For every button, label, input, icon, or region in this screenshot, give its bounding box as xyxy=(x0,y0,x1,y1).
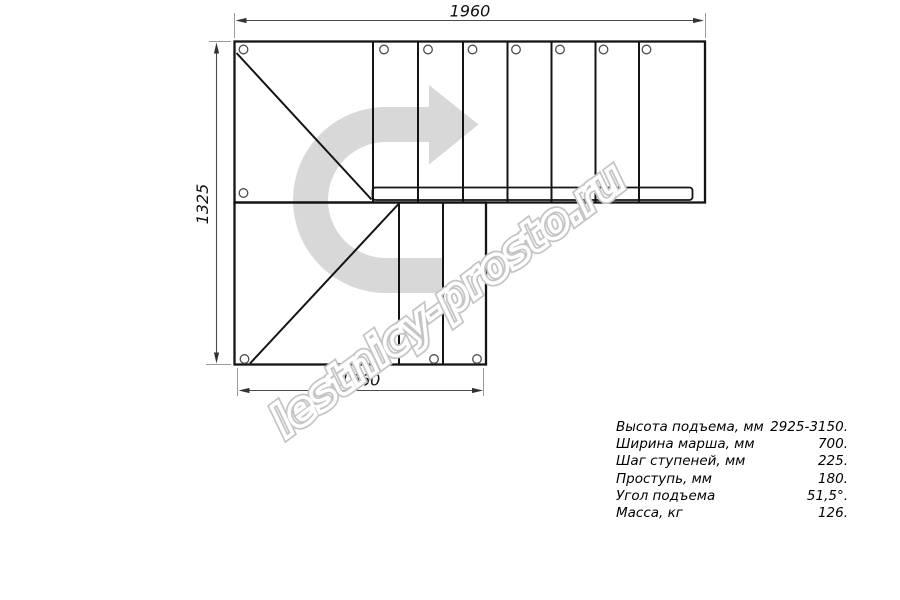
dimension-lines xyxy=(217,21,702,391)
spec-label: Высота подъема, мм xyxy=(616,419,764,436)
upper-flight-tread-lines xyxy=(373,42,639,203)
spec-label: Угол подъема xyxy=(616,488,715,505)
mounting-holes xyxy=(239,45,651,363)
spec-label: Масса, кг xyxy=(616,505,683,522)
spec-row-mass: Масса, кг 126. xyxy=(616,505,848,522)
spec-row-height: Высота подъема, мм 2925-3150. xyxy=(616,419,848,436)
lower-landing-diagonal xyxy=(250,204,399,364)
dimension-arrowheads xyxy=(214,18,704,393)
dim-bottom-label: 1060 xyxy=(340,371,381,390)
spec-value: 180. xyxy=(818,471,848,488)
upper-flight-outline xyxy=(235,42,706,203)
spec-label: Шаг ступеней, мм xyxy=(616,453,745,470)
spec-value: 2925-3150. xyxy=(770,419,848,436)
spec-value: 51,5°. xyxy=(807,488,848,505)
spec-label: Ширина марша, мм xyxy=(616,436,755,453)
spec-row-step-rise: Шаг ступеней, мм 225. xyxy=(616,453,848,470)
spec-value: 700. xyxy=(818,436,848,453)
spec-label: Проступь, мм xyxy=(616,471,712,488)
spec-row-angle: Угол подъема 51,5°. xyxy=(616,488,848,505)
spec-value: 126. xyxy=(818,505,848,522)
extension-lines xyxy=(206,13,706,396)
spec-row-tread-depth: Проступь, мм 180. xyxy=(616,471,848,488)
upper-landing-diagonal xyxy=(237,53,372,200)
spec-row-flight-width: Ширина марша, мм 700. xyxy=(616,436,848,453)
dim-top-label: 1960 xyxy=(450,2,491,21)
stringer-bar xyxy=(373,188,693,201)
spec-value: 225. xyxy=(818,453,848,470)
dim-left-label: 1325 xyxy=(193,184,212,225)
lower-flight-tread-lines xyxy=(399,203,443,365)
staircase-blueprint: 1960 1325 1060 lestnicy-prosto.ru lestni… xyxy=(0,0,900,600)
spec-table: Высота подъема, мм 2925-3150. Ширина мар… xyxy=(616,419,848,522)
